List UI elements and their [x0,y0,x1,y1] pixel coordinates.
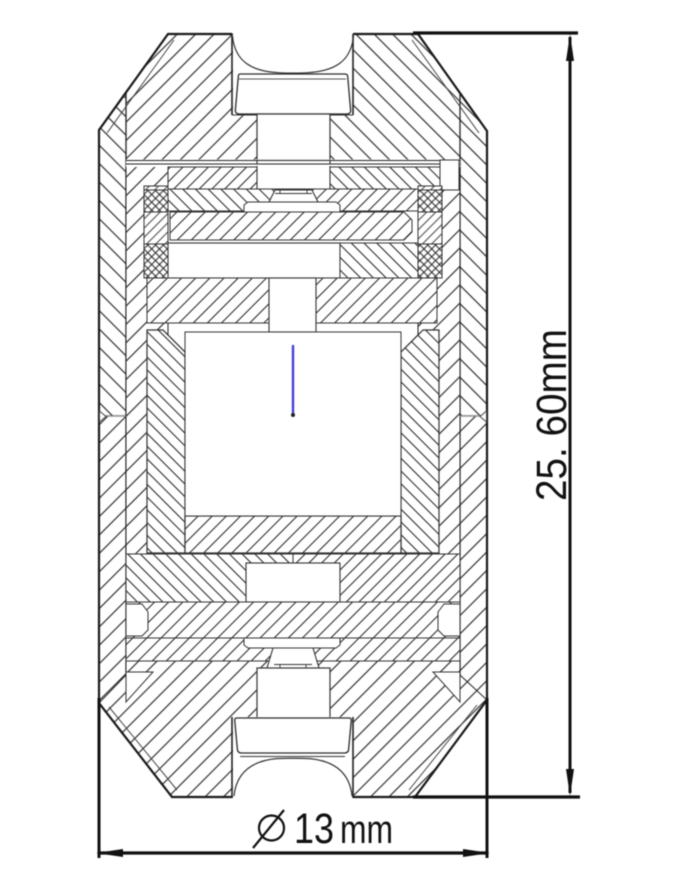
svg-text:25. 60mm: 25. 60mm [528,329,576,501]
svg-text:13: 13 [294,805,334,853]
svg-text:mm: mm [340,808,393,852]
